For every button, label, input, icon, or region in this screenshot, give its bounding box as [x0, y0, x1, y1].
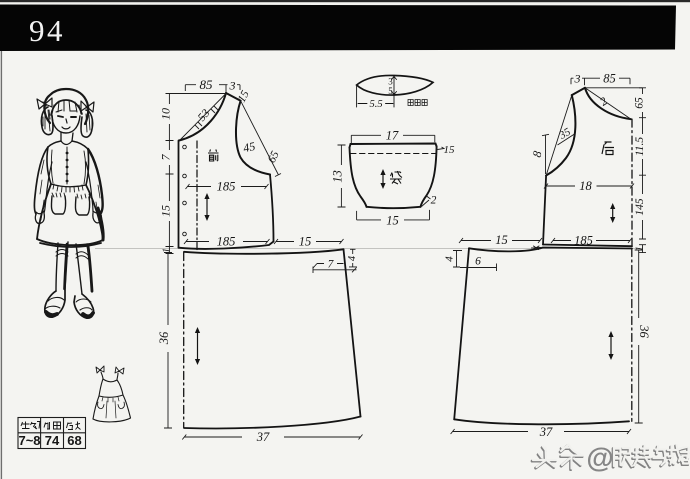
svg-text:145: 145: [634, 198, 646, 216]
svg-text:15: 15: [299, 235, 312, 249]
svg-text:6: 6: [475, 256, 481, 268]
svg-text:3: 3: [388, 77, 393, 87]
svg-text:17: 17: [386, 129, 399, 143]
svg-text:185: 185: [217, 235, 236, 249]
svg-text:10: 10: [158, 108, 172, 120]
svg-text:13: 13: [330, 170, 344, 183]
svg-text:15: 15: [495, 233, 508, 247]
svg-text:11.5: 11.5: [634, 137, 646, 157]
svg-text:36: 36: [637, 324, 651, 338]
svg-text:185: 185: [217, 180, 236, 194]
svg-text:94: 94: [29, 13, 65, 48]
svg-text:5.5: 5.5: [369, 99, 382, 110]
svg-text:15: 15: [444, 144, 456, 156]
svg-text:37: 37: [256, 430, 270, 444]
svg-text:2: 2: [431, 195, 437, 207]
svg-text:15: 15: [158, 205, 172, 217]
svg-text:3: 3: [229, 79, 236, 93]
svg-text:5: 5: [388, 86, 393, 96]
svg-text:85: 85: [200, 77, 214, 92]
svg-text:@: @: [586, 442, 613, 473]
svg-text:7: 7: [158, 154, 172, 161]
svg-text:15: 15: [386, 213, 399, 227]
svg-text:74: 74: [45, 433, 60, 448]
svg-text:3: 3: [574, 72, 581, 86]
svg-text:185: 185: [574, 233, 593, 247]
svg-text:18: 18: [579, 179, 592, 193]
svg-text:4: 4: [443, 256, 455, 262]
svg-text:7~8: 7~8: [18, 433, 40, 448]
svg-text:1: 1: [635, 246, 646, 251]
svg-text:85: 85: [603, 72, 616, 86]
svg-text:37: 37: [539, 425, 553, 439]
svg-text:4: 4: [347, 255, 358, 261]
svg-text:65: 65: [634, 97, 646, 109]
svg-text:68: 68: [67, 433, 81, 448]
svg-text:36: 36: [157, 331, 171, 345]
